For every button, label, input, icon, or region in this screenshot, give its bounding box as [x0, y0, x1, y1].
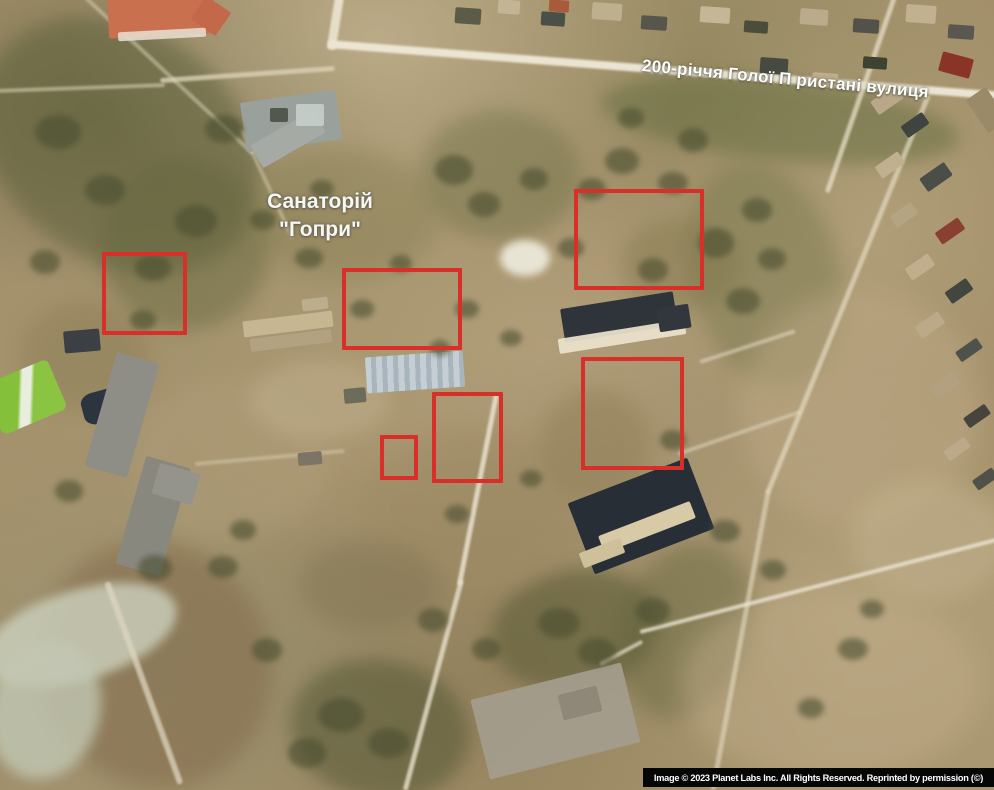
tree [85, 175, 125, 205]
tree [175, 205, 217, 237]
annotation-box-4 [432, 392, 503, 483]
annotation-box-6 [581, 357, 684, 470]
tree [318, 698, 364, 732]
building [744, 20, 769, 34]
building [297, 451, 322, 466]
tree [205, 115, 243, 143]
building [853, 18, 880, 34]
building [343, 387, 366, 404]
building [549, 0, 570, 13]
building [270, 108, 288, 122]
tree [605, 148, 639, 174]
tree [500, 330, 522, 346]
vegetation-patch [500, 240, 550, 276]
tree [618, 108, 644, 128]
annotation-box-5 [380, 435, 418, 480]
sanatorium-label-line1: Санаторій [240, 188, 400, 216]
annotation-box-3 [574, 189, 704, 290]
tree [288, 738, 326, 768]
tree [30, 250, 60, 274]
tree [636, 598, 670, 624]
annotation-box-1 [102, 252, 187, 335]
sanatorium-label: Санаторій "Гопри" [240, 188, 400, 245]
tree [418, 608, 448, 632]
building [541, 11, 566, 27]
tree [798, 698, 824, 718]
tree [678, 128, 708, 152]
annotation-box-2 [342, 268, 462, 350]
tree [726, 288, 760, 314]
tree [758, 248, 786, 270]
tree [138, 555, 172, 581]
tree [742, 198, 772, 222]
tree [295, 248, 323, 268]
vegetation-patch [680, 590, 980, 780]
building [863, 56, 888, 70]
building [365, 351, 465, 394]
tree [35, 115, 81, 149]
tree [230, 520, 256, 540]
building [799, 8, 828, 26]
building [656, 304, 691, 333]
building [454, 7, 481, 25]
tree [368, 728, 410, 758]
tree [208, 556, 238, 578]
tree [55, 480, 83, 502]
tree [468, 192, 500, 217]
tree [760, 560, 786, 580]
copyright-bar: Image © 2023 Planet Labs Inc. All Rights… [643, 768, 994, 787]
tree [520, 168, 548, 190]
building [498, 0, 521, 15]
tree [435, 155, 473, 185]
building [296, 104, 324, 126]
satellite-map-view: 200-річчя Голої П ристані вулиця Санатор… [0, 0, 994, 790]
tree [252, 638, 282, 662]
building [905, 4, 936, 24]
building [641, 15, 668, 31]
building [699, 6, 730, 24]
tree [838, 638, 868, 660]
tree [538, 608, 580, 638]
building [591, 2, 622, 21]
tree [710, 520, 740, 542]
tree [520, 470, 542, 487]
tree [445, 505, 469, 523]
building [63, 328, 101, 353]
building [948, 24, 975, 40]
tree [472, 638, 500, 660]
sanatorium-label-line2: "Гопри" [240, 216, 400, 244]
tree [860, 600, 884, 618]
tree [578, 638, 616, 666]
